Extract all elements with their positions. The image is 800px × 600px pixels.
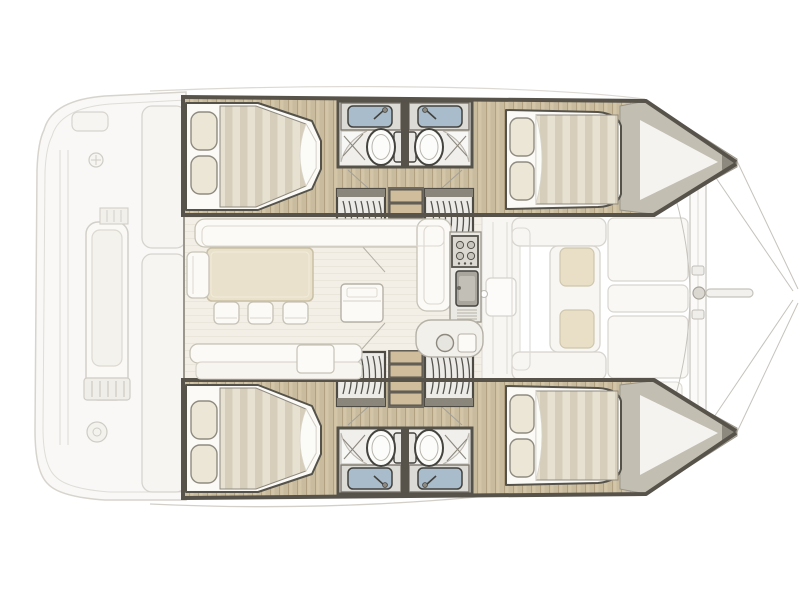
pillow: [191, 112, 217, 150]
beam-cleat: [692, 266, 704, 275]
cockpit-panel-upper: [142, 106, 186, 248]
beam-fitting: [693, 287, 705, 299]
beam-cleat: [692, 310, 704, 319]
fwd-bench-top: [512, 218, 606, 246]
stair-tread: [390, 190, 422, 202]
round-sink: [437, 335, 454, 352]
bench-cushion: [297, 345, 334, 373]
sunpad-cushion: [560, 248, 594, 286]
aft-berth: [186, 103, 321, 210]
forward-cockpit: [512, 218, 606, 380]
bowsprit: [706, 289, 753, 297]
cockpit-bench-cushion: [92, 230, 122, 366]
floor-plan-canvas: [0, 0, 800, 600]
cockpit-panel-lower: [142, 254, 186, 492]
side-seat: [187, 252, 209, 298]
round-sink-counter: [416, 320, 483, 357]
aft-bench: [190, 344, 362, 379]
stove: [452, 236, 478, 267]
deck-winch: [89, 153, 103, 167]
fridge-cabinet: [341, 284, 383, 322]
stool: [248, 302, 273, 324]
stool: [214, 302, 239, 324]
foredeck-panel: [608, 285, 688, 312]
mattress: [536, 115, 618, 204]
aft-deck-ghost: [35, 92, 186, 500]
foredeck-panel: [608, 218, 688, 281]
forward-berth: [506, 110, 621, 209]
stool: [283, 302, 308, 324]
pillow: [510, 162, 534, 200]
pillow: [510, 118, 534, 156]
foredeck-panel: [608, 316, 688, 378]
galley: [450, 232, 481, 322]
boat-floor-plan: [0, 0, 800, 600]
deck-hatch-ring: [87, 422, 107, 442]
stern-grill: [84, 378, 130, 400]
fwd-bench-bottom: [512, 352, 606, 380]
stern-locker: [72, 112, 108, 131]
sunpad-cushion: [560, 310, 594, 348]
dining-table: [207, 248, 313, 301]
pillow: [191, 156, 217, 194]
galley-sink: [456, 271, 478, 306]
bathroom-divider-wall: [401, 100, 409, 168]
